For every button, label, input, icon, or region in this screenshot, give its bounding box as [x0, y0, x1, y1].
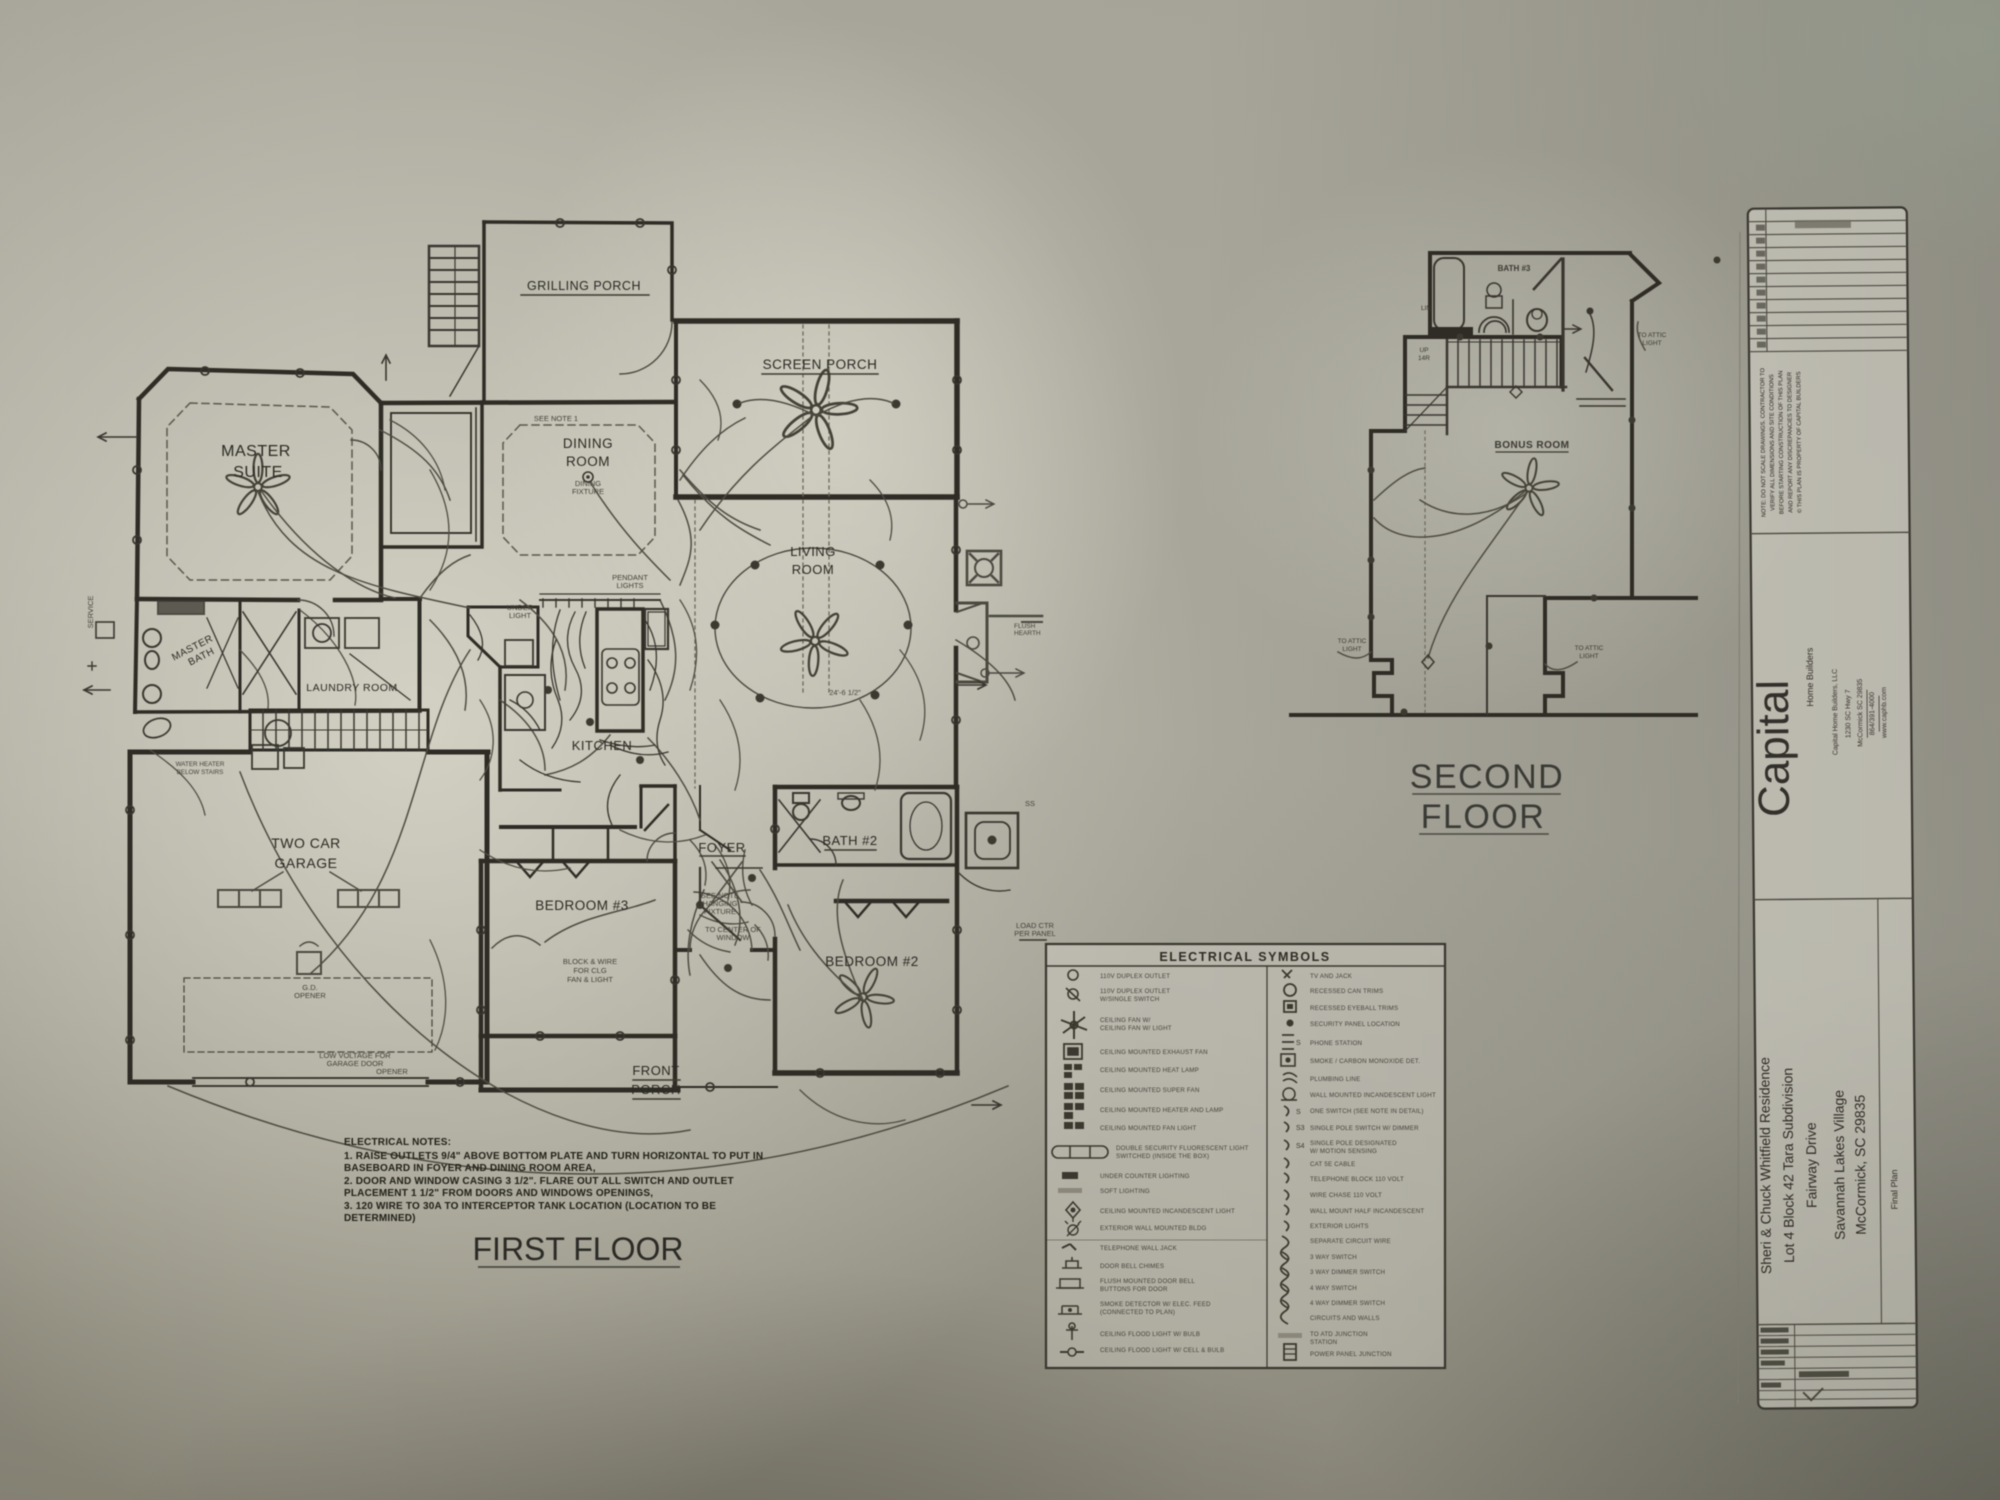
svg-text:FIXTURE: FIXTURE [704, 907, 736, 916]
svg-text:S: S [1296, 1109, 1301, 1116]
svg-text:Capital Home Builders, LLC: Capital Home Builders, LLC [1832, 669, 1840, 755]
svg-text:RECESSED CAN TRIMS: RECESSED CAN TRIMS [1310, 988, 1383, 995]
svg-text:CAT 5E CABLE: CAT 5E CABLE [1310, 1161, 1356, 1168]
svg-text:FLUSH: FLUSH [1014, 623, 1036, 630]
svg-text:CEILING MOUNTED EXHAUST FAN: CEILING MOUNTED EXHAUST FAN [1100, 1049, 1208, 1056]
svg-text:RECESSED EYEBALL TRIMS: RECESSED EYEBALL TRIMS [1310, 1005, 1398, 1012]
svg-text:CEILING FAN W/ LIGHT: CEILING FAN W/ LIGHT [1100, 1025, 1172, 1032]
svg-text:BELOW STAIRS: BELOW STAIRS [177, 769, 224, 776]
svg-text:OPENER: OPENER [294, 991, 326, 1000]
svg-text:BEDROOM #3: BEDROOM #3 [535, 898, 629, 913]
svg-text:24'-6 1/2": 24'-6 1/2" [829, 688, 861, 697]
svg-text:Capital: Capital [1749, 680, 1799, 817]
svg-text:BEDROOM #2: BEDROOM #2 [825, 954, 919, 969]
svg-text:PER PANEL: PER PANEL [1014, 929, 1056, 938]
svg-text:PHONE STATION: PHONE STATION [1310, 1040, 1362, 1047]
svg-text:1230 SC Hwy 7: 1230 SC Hwy 7 [1845, 689, 1852, 738]
svg-text:ONE SWITCH (SEE NOTE IN DETAIL: ONE SWITCH (SEE NOTE IN DETAIL) [1310, 1108, 1424, 1115]
svg-text:BEFORE STARTING CONSTRUCTION O: BEFORE STARTING CONSTRUCTION OF THIS PLA… [1778, 371, 1785, 515]
svg-text:LAUNDRY ROOM: LAUNDRY ROOM [306, 682, 397, 694]
svg-text:4 WAY DIMMER SWITCH: 4 WAY DIMMER SWITCH [1310, 1300, 1385, 1307]
svg-text:SOFT LIGHTING: SOFT LIGHTING [1100, 1188, 1150, 1195]
svg-text:Lot 4 Block 42 Tara Subdivisio: Lot 4 Block 42 Tara Subdivision [1779, 1068, 1797, 1263]
svg-text:EXTERIOR LIGHTS: EXTERIOR LIGHTS [1310, 1223, 1369, 1230]
svg-text:TV AND JACK: TV AND JACK [1310, 973, 1353, 980]
svg-text:WIRE CHASE 110 VOLT: WIRE CHASE 110 VOLT [1310, 1192, 1382, 1199]
svg-text:W/ MOTION SENSING: W/ MOTION SENSING [1310, 1148, 1377, 1155]
svg-text:LIGHT: LIGHT [509, 611, 532, 620]
svg-text:DOUBLE SECURITY FLUORESCENT LI: DOUBLE SECURITY FLUORESCENT LIGHT [1116, 1145, 1249, 1152]
svg-text:FOR CLG: FOR CLG [573, 966, 607, 975]
svg-text:864/391-4000: 864/391-4000 [1869, 692, 1876, 735]
svg-text:TWO CAR: TWO CAR [271, 835, 341, 851]
svg-text:BASEBOARD IN FOYER AND DINING: BASEBOARD IN FOYER AND DINING ROOM AREA, [344, 1163, 596, 1174]
svg-text:4 WAY SWITCH: 4 WAY SWITCH [1310, 1285, 1357, 1292]
svg-text:FOYER: FOYER [698, 840, 745, 855]
svg-text:BATH #3: BATH #3 [1498, 264, 1531, 273]
svg-text:3 WAY DIMMER SWITCH: 3 WAY DIMMER SWITCH [1310, 1269, 1385, 1276]
svg-text:SCREEN PORCH: SCREEN PORCH [763, 357, 878, 372]
svg-text:3. 120 WIRE TO 30A TO INTERCE: 3. 120 WIRE TO 30A TO INTERCEPTOR TANK L… [344, 1201, 716, 1212]
svg-text:UP: UP [1419, 347, 1428, 354]
svg-text:BUTTONS FOR DOOR: BUTTONS FOR DOOR [1100, 1286, 1168, 1293]
svg-text:CIRCUITS AND WALLS: CIRCUITS AND WALLS [1310, 1315, 1380, 1322]
svg-text:SS: SS [1025, 799, 1035, 808]
svg-text:Final Plan: Final Plan [1889, 1169, 1899, 1209]
svg-text:McCormick SC 29835: McCormick SC 29835 [1857, 679, 1865, 747]
svg-text:LIGHT: LIGHT [1642, 340, 1661, 347]
svg-text:ELECTRICAL NOTES:: ELECTRICAL NOTES: [344, 1137, 451, 1148]
svg-text:CEILING MOUNTED INCANDESCENT L: CEILING MOUNTED INCANDESCENT LIGHT [1100, 1208, 1235, 1215]
svg-text:S4: S4 [1296, 1143, 1305, 1150]
svg-text:DOOR BELL CHIMES: DOOR BELL CHIMES [1100, 1263, 1164, 1270]
svg-text:FLUSH MOUNTED DOOR BELL: FLUSH MOUNTED DOOR BELL [1100, 1278, 1195, 1285]
svg-text:MASTER: MASTER [221, 443, 291, 460]
svg-text:OPENER: OPENER [376, 1067, 408, 1076]
svg-text:TO ATD JUNCTION: TO ATD JUNCTION [1310, 1331, 1368, 1338]
svg-text:ELECTRICAL SYMBOLS: ELECTRICAL SYMBOLS [1159, 950, 1330, 964]
svg-text:110V DUPLEX OUTLET: 110V DUPLEX OUTLET [1100, 988, 1170, 995]
svg-text:LIN: LIN [1421, 305, 1431, 312]
svg-text:110V DUPLEX OUTLET: 110V DUPLEX OUTLET [1100, 973, 1170, 980]
svg-text:TELEPHONE WALL JACK: TELEPHONE WALL JACK [1100, 1245, 1178, 1252]
svg-text:LIVING: LIVING [790, 544, 836, 559]
svg-text:VERIFY ALL DIMENSIONS AND SITE: VERIFY ALL DIMENSIONS AND SITE CONDITION… [1769, 374, 1776, 511]
svg-text:SECOND: SECOND [1410, 758, 1564, 796]
svg-text:CEILING MOUNTED HEATER AND LAM: CEILING MOUNTED HEATER AND LAMP [1100, 1107, 1223, 1114]
svg-text:Home Builders: Home Builders [1805, 647, 1816, 707]
svg-text:TO ATTIC: TO ATTIC [1638, 332, 1667, 339]
svg-text:SMOKE / CARBON MONOXIDE DET.: SMOKE / CARBON MONOXIDE DET. [1310, 1058, 1420, 1065]
svg-text:Sheri & Chuck Whitfield Reside: Sheri & Chuck Whitfield Residence [1756, 1057, 1774, 1274]
svg-text:SEPARATE CIRCUIT WIRE: SEPARATE CIRCUIT WIRE [1310, 1238, 1391, 1245]
svg-text:TELEPHONE BLOCK 110 VOLT: TELEPHONE BLOCK 110 VOLT [1310, 1176, 1404, 1183]
svg-text:WATER HEATER: WATER HEATER [176, 761, 225, 768]
svg-text:HEARTH: HEARTH [1014, 630, 1041, 637]
svg-text:TO ATTIC: TO ATTIC [1338, 638, 1367, 645]
svg-text:CEILING MOUNTED SUPER FAN: CEILING MOUNTED SUPER FAN [1100, 1087, 1200, 1094]
svg-text:CEILING FLOOD LIGHT W/ CELL &: CEILING FLOOD LIGHT W/ CELL & BULB [1100, 1347, 1224, 1354]
svg-text:LIGHT: LIGHT [1342, 646, 1361, 653]
svg-text:14R: 14R [1418, 355, 1430, 362]
svg-text:WALL MOUNT HALF INCANDESCENT: WALL MOUNT HALF INCANDESCENT [1310, 1208, 1424, 1215]
svg-text:FLOOR: FLOOR [1421, 798, 1546, 836]
svg-text:UNDER COUNTER LIGHTING: UNDER COUNTER LIGHTING [1100, 1173, 1190, 1180]
svg-text:STATION: STATION [1310, 1339, 1337, 1346]
svg-text:SECURITY PANEL LOCATION: SECURITY PANEL LOCATION [1310, 1021, 1400, 1028]
svg-text:ROOM: ROOM [566, 454, 610, 469]
svg-text:BLOCK & WIRE: BLOCK & WIRE [563, 957, 617, 966]
svg-text:GARAGE: GARAGE [275, 855, 338, 871]
svg-text:McCormick, SC 29835: McCormick, SC 29835 [1852, 1094, 1869, 1234]
svg-text:WALL MOUNTED INCANDESCENT LIGH: WALL MOUNTED INCANDESCENT LIGHT [1310, 1092, 1436, 1099]
svg-text:TO ATTIC: TO ATTIC [1575, 645, 1604, 652]
svg-text:KITCHEN: KITCHEN [572, 738, 633, 753]
svg-text:S3: S3 [1296, 1125, 1305, 1132]
svg-text:W/SINGLE SWITCH: W/SINGLE SWITCH [1100, 996, 1159, 1003]
svg-text:© THIS PLAN IS PROPERTY OF CAP: © THIS PLAN IS PROPERTY OF CAPITAL BUILD… [1795, 371, 1803, 513]
svg-text:PLACEMENT 1 1/2" FROM DOORS AN: PLACEMENT 1 1/2" FROM DOORS AND WINDOWS … [344, 1188, 653, 1199]
svg-text:DINING: DINING [563, 436, 613, 451]
svg-text:Savannah Lakes Village: Savannah Lakes Village [1830, 1090, 1847, 1240]
svg-text:DETERMINED): DETERMINED) [344, 1213, 416, 1224]
svg-text:LIGHT: LIGHT [1579, 653, 1598, 660]
svg-text:SEE NOTE 1: SEE NOTE 1 [534, 414, 578, 423]
svg-text:CEILING MOUNTED HEAT LAMP: CEILING MOUNTED HEAT LAMP [1100, 1067, 1199, 1074]
svg-text:GRILLING PORCH: GRILLING PORCH [527, 279, 641, 293]
svg-text:1. RAISE OUTLETS 9/4" ABOVE BO: 1. RAISE OUTLETS 9/4" ABOVE BOTTOM PLATE… [344, 1151, 763, 1162]
svg-text:Fairway Drive: Fairway Drive [1803, 1122, 1820, 1208]
svg-text:CEILING MOUNTED FAN LIGHT: CEILING MOUNTED FAN LIGHT [1100, 1125, 1196, 1132]
svg-text:SINGLE POLE SWITCH W/ DIMMER: SINGLE POLE SWITCH W/ DIMMER [1310, 1125, 1419, 1132]
svg-text:BATH #2: BATH #2 [822, 833, 877, 848]
svg-text:CEILING FLOOD LIGHT W/ BULB: CEILING FLOOD LIGHT W/ BULB [1100, 1331, 1200, 1338]
svg-text:S: S [1296, 1040, 1301, 1047]
svg-text:2. DOOR AND WINDOW CASING 3 1/: 2. DOOR AND WINDOW CASING 3 1/2". FLARE … [344, 1176, 734, 1187]
svg-text:SMOKE DETECTOR W/ ELEC. FEED: SMOKE DETECTOR W/ ELEC. FEED [1100, 1301, 1211, 1308]
svg-text:BONUS ROOM: BONUS ROOM [1495, 440, 1570, 451]
svg-text:PLUMBING LINE: PLUMBING LINE [1310, 1076, 1360, 1083]
svg-text:SINGLE POLE DESIGNATED: SINGLE POLE DESIGNATED [1310, 1140, 1397, 1147]
svg-text:SWITCHED (INSIDE THE BOX): SWITCHED (INSIDE THE BOX) [1116, 1153, 1209, 1160]
svg-text:3 WAY SWITCH: 3 WAY SWITCH [1310, 1254, 1357, 1261]
svg-text:EXTERIOR WALL MOUNTED BLDG: EXTERIOR WALL MOUNTED BLDG [1100, 1225, 1207, 1232]
svg-text:CEILING FAN W/: CEILING FAN W/ [1100, 1017, 1151, 1024]
svg-text:POWER PANEL JUNCTION: POWER PANEL JUNCTION [1310, 1351, 1392, 1358]
svg-text:FIRST FLOOR: FIRST FLOOR [473, 1231, 684, 1267]
svg-text:AND REPORT ANY DISCREPANCIES T: AND REPORT ANY DISCREPANCIES TO DESIGNER [1787, 372, 1794, 513]
svg-text:www.caphb.com: www.caphb.com [1881, 687, 1888, 739]
svg-text:SERVICE: SERVICE [86, 596, 95, 629]
svg-text:FAN & LIGHT: FAN & LIGHT [567, 975, 613, 984]
svg-text:FIXTURE: FIXTURE [572, 487, 604, 496]
svg-text:(CONNECTED TO PLAN): (CONNECTED TO PLAN) [1100, 1309, 1175, 1316]
svg-text:SUITE: SUITE [233, 464, 283, 481]
svg-text:WINDOW: WINDOW [717, 933, 751, 942]
svg-text:LIGHTS: LIGHTS [616, 581, 643, 590]
svg-text:ROOM: ROOM [792, 562, 834, 577]
svg-text:PORCH: PORCH [631, 1082, 680, 1097]
svg-text:FRONT: FRONT [632, 1063, 679, 1078]
